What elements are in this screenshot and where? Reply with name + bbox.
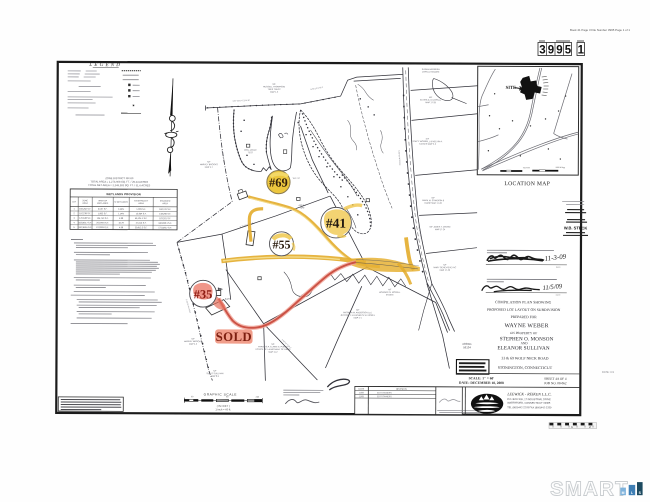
svg-text:5,537 S.F.: 5,537 S.F.	[98, 209, 108, 211]
svg-text:TEST: TEST	[248, 152, 254, 154]
svg-text:TEL (860)442-2203 FAX (860): TEL (860)442-2203 FAX (860)442-2259	[507, 406, 552, 409]
svg-text:5: 5	[565, 45, 572, 57]
svg-text:LOCATION MAP: LOCATION MAP	[504, 181, 550, 187]
svg-text:HOWARD G. MORELL: HOWARD G. MORELL	[379, 291, 401, 294]
svg-text:( IN FEET ): ( IN FEET )	[217, 404, 230, 408]
svg-text:AREA: AREA	[138, 202, 144, 205]
svg-text:27,615 S.F.: 27,615 S.F.	[136, 223, 147, 225]
svg-text:11/09: 11/09	[359, 392, 365, 394]
svg-text:192,366.5 S.F.: 192,366.5 S.F.	[78, 227, 92, 229]
svg-text:MAP 17-20: MAP 17-20	[440, 269, 451, 272]
svg-text:EDIT OWNERS: EDIT OWNERS	[377, 396, 392, 398]
svg-text:WAYNE WEBER: WAYNE WEBER	[504, 323, 548, 329]
svg-text:SITE: SITE	[506, 85, 517, 90]
svg-text:WATERFORD, CONNECTICUT 06385: WATERFORD, CONNECTICUT 06385	[507, 402, 551, 405]
svg-text:160,131 S.F.: 160,131 S.F.	[159, 209, 171, 211]
svg-text:WETLANDS PROVISION: WETLANDS PROVISION	[106, 192, 141, 196]
svg-text:160,292 S.F.: 160,292 S.F.	[79, 209, 91, 211]
svg-text:MAP 4-7: MAP 4-7	[205, 166, 214, 169]
svg-text:MAP 17-24: MAP 17-24	[435, 228, 446, 231]
svg-text:EDIT OWNERS: EDIT OWNERS	[377, 392, 392, 394]
svg-text:MAP 4-2: MAP 4-2	[189, 343, 198, 346]
svg-text:2000 ft Map: 2000 ft Map	[556, 166, 566, 169]
svg-text:M: M	[622, 491, 625, 495]
svg-text:HARVEY BROOKS: HARVEY BROOKS	[184, 340, 203, 343]
svg-text:REVISION: REVISION	[396, 389, 407, 391]
svg-text:N/F JAMES T. DODGE: N/F JAMES T. DODGE	[429, 225, 451, 228]
svg-text:#41: #41	[326, 216, 347, 231]
svg-text:JOHN LETENDRE: JOHN LETENDRE	[422, 72, 440, 74]
svg-text:171,020.7 S.F.: 171,020.7 S.F.	[158, 227, 172, 229]
svg-text:MAP 1-3: MAP 1-3	[270, 91, 279, 94]
svg-text:MAP 4-1: MAP 4-1	[354, 316, 363, 319]
svg-text:W.F. 12: W.F. 12	[293, 178, 301, 180]
svg-text:ELVIRA G. DI JOHN A.: ELVIRA G. DI JOHN A.	[420, 99, 442, 102]
svg-text:TUCKER MAP 2-2: TUCKER MAP 2-2	[419, 143, 437, 146]
svg-text:163,065.7 S.F.: 163,065.7 S.F.	[78, 222, 92, 224]
svg-text:160,838.1 S.F.: 160,838.1 S.F.	[158, 223, 172, 225]
svg-text:1: 1	[578, 45, 585, 57]
svg-text:W.B. STECK: W.B. STECK	[564, 225, 587, 230]
svg-text:COMPILATION PLAN SHOWING: COMPILATION PLAN SHOWING	[495, 300, 552, 304]
svg-text:56,124.1 S.F.: 56,124.1 S.F.	[135, 218, 148, 220]
svg-text:29,812.2 S.F.: 29,812.2 S.F.	[135, 227, 148, 229]
svg-text:9: 9	[548, 45, 554, 57]
svg-text:DATE: DATE	[358, 388, 364, 391]
svg-text:"NPA": "NPA"	[299, 207, 305, 210]
svg-text:MAP 17-28: MAP 17-28	[425, 101, 436, 104]
svg-text:PREPARED FOR: PREPARED FOR	[511, 315, 538, 319]
svg-text:DATE: 3-9: DATE: 3-9	[602, 370, 614, 374]
svg-text:176,538 S.F.: 176,538 S.F.	[79, 218, 91, 220]
svg-text:DIANE MAP 17-26: DIANE MAP 17-26	[424, 202, 442, 205]
svg-text:SHEET 4A OF 4: SHEET 4A OF 4	[544, 377, 567, 381]
svg-text:ESTATE: ESTATE	[386, 293, 394, 296]
svg-text:1.14%: 1.14%	[118, 213, 124, 215]
svg-text:148,290 S.F.: 148,290 S.F.	[159, 214, 171, 216]
svg-text:13,954 S.F.: 13,954 S.F.	[136, 213, 147, 215]
svg-text:SUSAN HERRERA: SUSAN HERRERA	[422, 68, 441, 71]
svg-text:WETLANDS: WETLANDS	[97, 202, 109, 205]
svg-text:SOLD: SOLD	[216, 330, 253, 344]
svg-text:MARY GENEVIEVE INC: MARY GENEVIEVE INC	[434, 266, 457, 269]
svg-text:ELEANOR SULLIVAN: ELEANOR SULLIVAN	[497, 345, 550, 351]
svg-text:33 & 69 WOLF NECK ROAD: 33 & 69 WOLF NECK ROAD	[501, 356, 548, 360]
svg-text:AREA 2: AREA 2	[298, 204, 306, 207]
svg-text:MAP 8-5: MAP 8-5	[211, 375, 220, 378]
svg-text:700 Feet: 700 Feet	[523, 166, 531, 169]
svg-text:#55: #55	[272, 237, 290, 251]
svg-text:3.45%: 3.45%	[118, 209, 124, 211]
svg-text:SMART: SMART	[550, 478, 629, 501]
svg-text:SCALE: 1" = 60': SCALE: 1" = 60'	[469, 376, 495, 380]
svg-text:9: 9	[556, 45, 562, 57]
svg-text:Book 41 Page 3 File Number 399: Book 41 Page 3 File Number 3995 Page 1 o…	[570, 28, 630, 32]
svg-text:MAP 11-2: MAP 11-2	[268, 351, 278, 354]
svg-text:LEEWICK - REIKEN L.L.C.: LEEWICK - REIKEN L.L.C.	[506, 392, 551, 396]
svg-text:ON PROPERTY OF: ON PROPERTY OF	[510, 331, 537, 335]
svg-text:152,238 S.F.: 152,238 S.F.	[79, 213, 91, 215]
svg-text:1,862 S.F.: 1,862 S.F.	[98, 213, 108, 215]
svg-text:58134: 58134	[463, 345, 471, 349]
svg-text:1 inch = 60 ft.: 1 inch = 60 ft.	[215, 407, 231, 411]
svg-text:ESTATE OF LA BETHANY OF DAVIS: ESTATE OF LA BETHANY OF DAVIS	[256, 348, 291, 351]
svg-text:26,078.9 S.F.: 26,078.9 S.F.	[96, 222, 109, 224]
svg-text:AREA: AREA	[162, 202, 168, 205]
svg-text:JEFFREY F. & KATHRYN W. MOREL: JEFFREY F. & KATHRYN W. MOREL	[340, 314, 375, 317]
svg-text:#69: #69	[269, 176, 288, 190]
svg-text:AREA: AREA	[82, 202, 88, 205]
svg-text:HARVEY BROOKS: HARVEY BROOKS	[200, 163, 219, 166]
svg-text:L: L	[631, 491, 633, 495]
svg-text:TOTAL NET AREA = 2,243,282 SQ.: TOTAL NET AREA = 2,243,282 SQ. FT. / 51.…	[88, 183, 150, 187]
svg-text:3: 3	[539, 45, 545, 57]
svg-text:GRAPHIC SCALE: GRAPHIC SCALE	[204, 392, 238, 396]
svg-text:ZONE DISTRICT RR-80: ZONE DISTRICT RR-80	[105, 176, 134, 180]
svg-text:DATE: DECEMBER 18, 2008: DATE: DECEMBER 18, 2008	[459, 381, 504, 385]
svg-text:67,283.8 S.F.: 67,283.8 S.F.	[96, 227, 109, 229]
svg-text:JOB NO. 08-062: JOB NO. 08-062	[544, 381, 567, 385]
svg-text:DATE: DATE	[556, 266, 561, 269]
svg-text:#35: #35	[194, 287, 213, 301]
svg-text:1,383 S.F.: 1,383 S.F.	[136, 209, 146, 211]
svg-text:163,201 S.F.: 163,201 S.F.	[159, 218, 171, 220]
svg-text:11/09: 11/09	[359, 396, 365, 398]
svg-text:PROPOSED LOT LAYOUT ON SUBDIVI: PROPOSED LOT LAYOUT ON SUBDIVISION	[487, 308, 561, 312]
svg-text:16.78: 16.78	[118, 223, 124, 225]
svg-text:BARN: BARN	[225, 298, 231, 301]
svg-text:DATE: DATE	[556, 294, 561, 297]
svg-text:STACY WORRELL & MELVIN A.: STACY WORRELL & MELVIN A.	[412, 140, 442, 143]
svg-text:SUE O SULLIVAN: SUE O SULLIVAN	[206, 372, 223, 375]
svg-text:% WETLANDS: % WETLANDS	[114, 201, 128, 204]
svg-text:135,743 S.F.: 135,743 S.F.	[97, 218, 109, 220]
